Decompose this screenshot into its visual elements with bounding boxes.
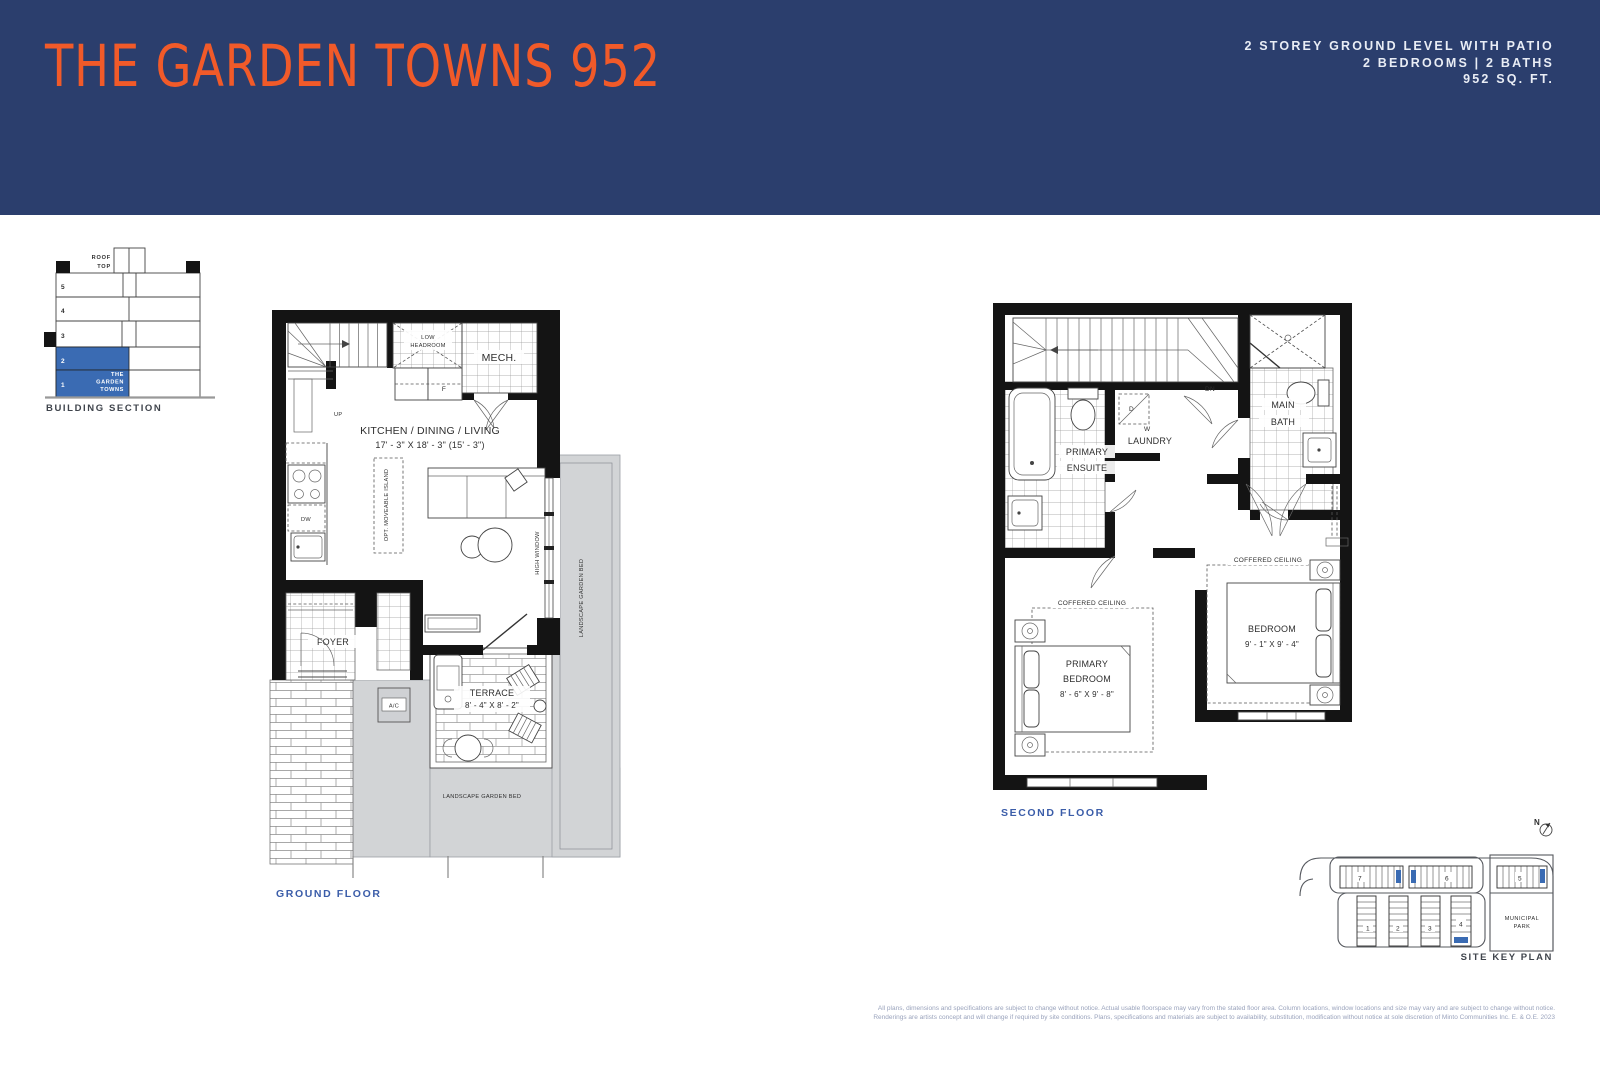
building-3: 3 <box>1428 926 1432 933</box>
disclaimer-line-2: Renderings are artists concept and will … <box>795 1014 1555 1023</box>
garden-bed-label-horizontal: LANDSCAPE GARDEN BED <box>443 794 521 800</box>
building-1: 1 <box>1366 926 1370 933</box>
primary-bedroom-label-1: PRIMARY <box>1066 659 1108 669</box>
primary-ensuite-label-1: PRIMARY <box>1066 447 1108 457</box>
low-headroom: LOW HEADROOM <box>393 323 462 368</box>
bedroom-label: BEDROOM <box>1248 624 1296 634</box>
terrace-side-table <box>534 700 546 712</box>
high-window-label: HIGH WINDOW <box>535 531 541 575</box>
low-headroom-label-2: HEADROOM <box>410 343 445 349</box>
building-2: 2 <box>1396 926 1400 933</box>
kitchen-title: KITCHEN / DINING / LIVING <box>360 425 500 437</box>
low-headroom-label-1: LOW <box>421 335 435 341</box>
foyer: FOYER <box>286 593 410 680</box>
terrace-label: TERRACE <box>470 688 514 698</box>
north-compass-icon: N <box>1534 818 1552 836</box>
ac-label: A/C <box>389 704 399 710</box>
primary-bedroom-dims: 8' - 6" X 9' - 8" <box>1060 690 1114 699</box>
sofa <box>428 468 545 518</box>
kitchen-sink <box>291 533 325 561</box>
dn-label: DN <box>1205 386 1215 393</box>
municipal-park-label-2: PARK <box>1514 924 1531 930</box>
building-4: 4 <box>1459 922 1463 929</box>
garden-bed-label-vertical: LANDSCAPE GARDEN BED <box>579 559 585 637</box>
ground-floor-label: GROUND FLOOR <box>276 888 382 900</box>
highlight-name-1: THE <box>111 372 124 378</box>
floor-3: 3 <box>61 333 65 340</box>
roof-label-2: TOP <box>97 264 111 270</box>
foyer-label: FOYER <box>317 637 349 647</box>
municipal-park-label-1: MUNICIPAL <box>1505 916 1540 922</box>
main-bath-sink <box>1303 433 1336 467</box>
highlight-floor-2 <box>56 347 129 370</box>
unit-specs: 2 STOREY GROUND LEVEL WITH PATIO 2 BEDRO… <box>1244 38 1554 88</box>
bedroom-dims: 9' - 1" X 9' - 4" <box>1245 640 1299 649</box>
building-section-label: BUILDING SECTION <box>46 403 162 414</box>
header-band: THE GARDEN TOWNS 952 2 STOREY GROUND LEV… <box>0 0 1600 215</box>
building-6: 6 <box>1445 876 1449 883</box>
up-label: UP <box>334 412 342 418</box>
washer-label: W <box>1144 426 1151 433</box>
laundry-label: LAUNDRY <box>1128 436 1172 446</box>
side-table-large <box>478 528 512 562</box>
brick-walkway <box>270 680 353 864</box>
north-label: N <box>1534 818 1540 827</box>
floor-5: 5 <box>61 284 65 291</box>
ensuite-sink <box>1008 496 1042 530</box>
primary-bedroom-label-2: BEDROOM <box>1063 674 1111 684</box>
bathtub <box>1009 388 1055 480</box>
floor-2: 2 <box>61 358 65 365</box>
roof-label-1: ROOF <box>92 255 111 261</box>
island-label: OPT. MOVEABLE ISLAND <box>384 469 390 542</box>
cooktop <box>288 465 325 503</box>
ground-floor-plan: UP LOW HEADROOM MECH. F <box>268 298 624 882</box>
dishwasher-label: DW <box>301 517 311 523</box>
second-floor-label: SECOND FLOOR <box>1001 807 1105 819</box>
highlight-name-3: TOWNS <box>100 387 124 393</box>
coffered-ceiling-label-1: COFFERED CEILING <box>1058 600 1126 607</box>
spec-storey: 2 STOREY GROUND LEVEL WITH PATIO <box>1244 38 1554 55</box>
fridge: F <box>395 368 462 400</box>
floor-1: 1 <box>61 382 65 389</box>
coffered-ceiling-label-2: COFFERED CEILING <box>1234 557 1302 564</box>
spec-bed-bath: 2 BEDROOMS | 2 BATHS <box>1244 55 1554 72</box>
building-5: 5 <box>1518 876 1522 883</box>
disclaimer: All plans, dimensions and specifications… <box>795 1005 1555 1022</box>
ac-unit: A/C <box>378 688 410 722</box>
page-title: THE GARDEN TOWNS 952 <box>45 32 661 100</box>
floorplan-page: THE GARDEN TOWNS 952 2 STOREY GROUND LEV… <box>0 0 1600 1067</box>
spec-area: 952 SQ. FT. <box>1244 71 1554 88</box>
floor-4: 4 <box>61 308 65 315</box>
main-bath-label-1: MAIN <box>1271 400 1294 410</box>
building-7: 7 <box>1358 876 1362 883</box>
fridge-label: F <box>442 386 446 393</box>
main-bath-label-2: BATH <box>1271 417 1295 427</box>
primary-ensuite-label-2: ENSUITE <box>1067 463 1107 473</box>
terrace-dims: 8' - 4" X 8' - 2" <box>465 701 519 710</box>
kitchen-dims: 17' - 3" X 18' - 3" (15' - 3") <box>375 440 484 450</box>
mech-label: MECH. <box>482 352 517 364</box>
disclaimer-line-1: All plans, dimensions and specifications… <box>795 1005 1555 1014</box>
highlight-name-2: GARDEN <box>96 380 124 386</box>
building-section-diagram: ROOF TOP 5 4 3 2 1 THE GARDEN TOWNS <box>40 244 270 404</box>
site-key-plan: N <box>1295 800 1565 965</box>
second-floor-plan: DN PRIMARY ENSUITE <box>988 298 1360 803</box>
site-key-plan-label: SITE KEY PLAN <box>1461 952 1553 963</box>
